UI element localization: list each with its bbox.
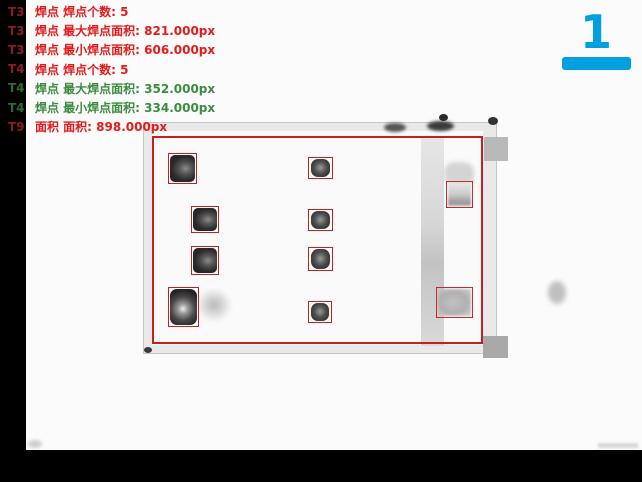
tool-tag-label: T4 xyxy=(8,81,30,95)
detection-box xyxy=(308,247,333,271)
solder-joint-blob xyxy=(193,208,217,231)
detection-box xyxy=(168,153,197,184)
connector-tab-top-right xyxy=(484,137,508,161)
tool-tag-label: T3 xyxy=(8,24,30,38)
connector-tab-bottom-right xyxy=(483,336,508,358)
tool-tag-label: T9 xyxy=(8,120,30,134)
solder-joint-blob xyxy=(311,249,330,269)
annotation-text: 焊点 焊点个数: 5 xyxy=(35,3,129,20)
detection-box xyxy=(436,287,473,318)
solder-joint-blob xyxy=(311,159,330,177)
dark-dot xyxy=(144,347,152,353)
annotation-text: 焊点 最小焊点面积: 334.000px xyxy=(35,99,215,116)
tool-tag-label: T4 xyxy=(8,62,30,76)
annotation-line: T3焊点 最大焊点面积: 821.000px xyxy=(8,21,215,40)
detection-box xyxy=(446,181,473,208)
tool-tag-label: T3 xyxy=(8,43,30,57)
annotation-line: T4焊点 最大焊点面积: 352.000px xyxy=(8,79,215,98)
dark-dot xyxy=(439,114,448,121)
annotation-text: 焊点 最大焊点面积: 821.000px xyxy=(35,22,215,39)
detection-box xyxy=(308,157,333,179)
vision-display-canvas[interactable]: T3焊点 焊点个数: 5T3焊点 最大焊点面积: 821.000pxT3焊点 最… xyxy=(0,0,642,482)
dark-smudge xyxy=(384,123,406,132)
step-indicator[interactable]: 1 xyxy=(560,8,632,70)
annotation-block: T3焊点 焊点个数: 5T3焊点 最大焊点面积: 821.000pxT3焊点 最… xyxy=(8,2,215,136)
solder-joint-blob xyxy=(311,303,329,321)
solder-joint-blob xyxy=(438,289,471,316)
dark-dot xyxy=(488,117,498,125)
annotation-line: T4焊点 最小焊点面积: 334.000px xyxy=(8,98,215,117)
annotation-line: T4焊点 焊点个数: 5 xyxy=(8,60,215,79)
gray-smudge xyxy=(28,440,42,448)
solder-joint-blob xyxy=(311,211,330,229)
solder-joint-blob xyxy=(193,248,217,273)
tool-tag-label: T4 xyxy=(8,101,30,115)
annotation-text: 焊点 焊点个数: 5 xyxy=(35,61,129,78)
dark-smudge xyxy=(427,121,454,131)
annotation-text: 面积 面积: 898.000px xyxy=(35,118,167,135)
solder-joint-blob xyxy=(170,289,197,325)
solder-joint-blob xyxy=(170,155,195,182)
detection-box xyxy=(308,209,333,231)
solder-joint-blob xyxy=(448,183,471,206)
annotation-line: T9面积 面积: 898.000px xyxy=(8,117,215,136)
step-number: 1 xyxy=(560,8,632,56)
annotation-line: T3焊点 焊点个数: 5 xyxy=(8,2,215,21)
detection-box xyxy=(191,206,219,233)
annotation-text: 焊点 最大焊点面积: 352.000px xyxy=(35,80,215,97)
gray-smudge xyxy=(548,281,566,304)
annotation-text: 焊点 最小焊点面积: 606.000px xyxy=(35,41,215,58)
tool-tag-label: T3 xyxy=(8,5,30,19)
detection-box xyxy=(168,287,199,327)
gray-streak xyxy=(598,443,638,448)
detection-box xyxy=(308,301,332,323)
annotation-line: T3焊点 最小焊点面积: 606.000px xyxy=(8,40,215,59)
detection-box xyxy=(191,246,219,275)
